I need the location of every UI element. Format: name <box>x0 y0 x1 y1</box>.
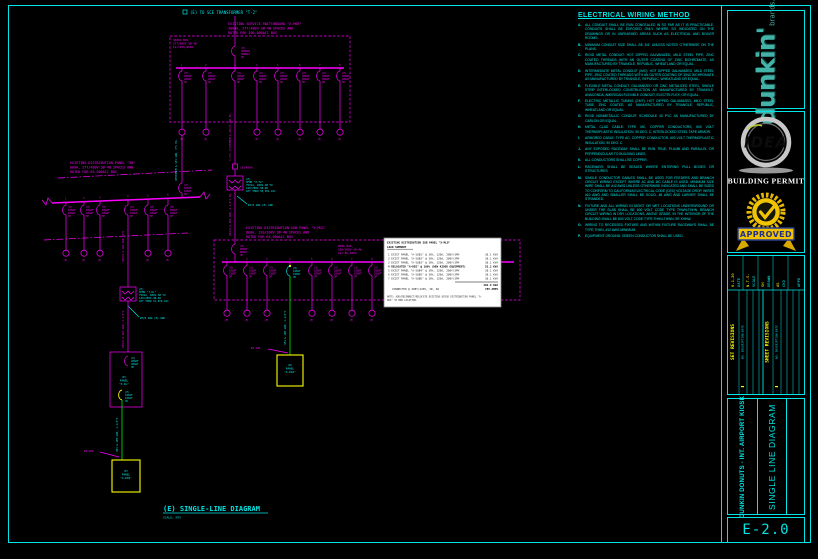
svg-text:NO. DESCRIPTION DATE: NO. DESCRIPTION DATE <box>741 325 745 359</box>
svg-text:3#350MCM & 1#1 GRD, 3"C EA.: 3#350MCM & 1#1 GRD, 3"C EA. <box>174 139 178 181</box>
svg-text:RATED FOR 100,000AIC BUS: RATED FOR 100,000AIC BUS <box>228 31 277 35</box>
svg-text:EXISTING DISTRIBUTION SUB PANE: EXISTING DISTRIBUTION SUB PANEL "X-MLO" <box>387 241 450 245</box>
svg-text:4: 4 <box>289 257 291 261</box>
svg-text:#4 GRD: #4 GRD <box>84 449 94 453</box>
svg-text:4: 4 <box>256 63 258 67</box>
note-item: ELECTRIC METALLIC TUBING (EMT): HOT DIPP… <box>585 99 714 112</box>
svg-text:4#4/0 & 1#4 GRD, 2-1/2"C EA.: 4#4/0 & 1#4 GRD, 2-1/2"C EA. <box>228 192 232 236</box>
svg-text:2: 2 <box>83 196 85 200</box>
svg-text:SH: SH <box>760 282 765 287</box>
note-item: ANY EXPOSED RACEWAY SHALL BE RUN TRUE, P… <box>585 147 714 156</box>
notes-title: ELECTRICAL WIRING METHOD <box>578 12 714 19</box>
svg-text:SHEET REVISIONS: SHEET REVISIONS <box>765 321 771 363</box>
svg-text:(E)400A: (E)400A <box>240 166 253 170</box>
svg-text:1: 1 <box>226 257 228 261</box>
drawing-title: (E) SINGLE-LINE DIAGRAM SCALE: NTS <box>163 505 268 520</box>
svg-text:4: 4 <box>127 194 129 198</box>
svg-text:3P: 3P <box>241 55 245 59</box>
svg-text:3P: 3P <box>293 275 297 279</box>
svg-text:1: 1 <box>181 63 183 67</box>
center-feeder-group: 3-3"C.(3)500MCM & 1#3/0 GRD EA. (E)400A … <box>227 113 276 244</box>
svg-text:(E) TO SCE TRANSFORMER "T-2": (E) TO SCE TRANSFORMER "T-2" <box>190 10 257 15</box>
svg-text:EXISTING DISTRIBUTION SUB PANE: EXISTING DISTRIBUTION SUB PANEL "X-MLO" <box>246 226 326 230</box>
svg-text:6: 6 <box>331 257 333 261</box>
main-switchboard: EXISTING SERVICE SWITCHBOARD "X-MSB" 300… <box>170 22 350 164</box>
sub-branch-breakers <box>224 262 382 322</box>
svg-text:3: 3 <box>234 63 236 67</box>
relocated-breaker: (R) 100AF 100AT 3P <box>287 262 301 279</box>
svg-text:3P: 3P <box>125 399 129 403</box>
note-item: FLEXIBLE METAL CONDUIT: GALVANIZED OR ZI… <box>585 84 714 97</box>
svg-text:RATED FOR 65,000AIC BUS: RATED FOR 65,000AIC BUS <box>246 235 293 239</box>
svg-text:CONNECTED @ 208Y/120V, 3Ø, 4W: CONNECTED @ 208Y/120V, 3Ø, 4W <box>392 286 439 291</box>
svg-text:SCALE: SCALE <box>751 275 756 287</box>
svg-text:6: 6 <box>167 193 169 197</box>
msb-feeder-breakers <box>179 68 350 164</box>
svg-text:8: 8 <box>339 63 341 67</box>
brand-logo-box: dunkin'brands... <box>727 10 805 109</box>
wiring-method-notes: ELECTRICAL WIRING METHOD A.ALL CONDUIT S… <box>578 12 714 241</box>
svg-text:EXISTING DISTRIBUTION PANEL "D: EXISTING DISTRIBUTION PANEL "DB" <box>70 161 135 165</box>
svg-text:LOAD SUMMARY: LOAD SUMMARY <box>387 245 407 249</box>
svg-text:1: 1 <box>65 197 67 201</box>
svg-text:CKD: CKD <box>781 279 786 287</box>
svg-text:5: 5 <box>277 63 279 67</box>
note-item: MINIMUM CONDUIT SIZE SHALL BE 3/4" UNLES… <box>585 43 714 52</box>
svg-text:#4 GRD: #4 GRD <box>251 346 261 350</box>
svg-text:3000A, 277/480V-3Ø-4W SPACES A: 3000A, 277/480V-3Ø-4W SPACES AND <box>228 26 293 31</box>
note-item: METAL CLAD CABLE: TYPE MC, COPPER CONDUC… <box>585 125 714 134</box>
svg-text:APPD: APPD <box>796 277 801 287</box>
certification-box: IDEA BUILDING PERMIT APPROVED <box>727 111 805 253</box>
project-name: DUNKIN DONUTS - INT. AIRPORT KIOSK <box>740 395 746 517</box>
svg-text:3#4/0 & 1#4 GRD, 2"C: 3#4/0 & 1#4 GRD, 2"C <box>121 230 125 262</box>
sheet-number-box: E-2.0 <box>727 517 805 543</box>
building-permit-label: BUILDING PERMIT <box>728 177 804 186</box>
note-item: WIRING TO RECESSED FIXTURE AND WITHIN FI… <box>585 223 714 232</box>
svg-text:DRAWN: DRAWN <box>766 275 771 287</box>
svg-text:"A-DD2": "A-DD2" <box>120 476 132 480</box>
transformer-t-dl: (E) XFMR "T-DL" 75kVA, 480V-3Ø TO 120/20… <box>120 287 169 303</box>
panel-a-dd2-relocated: (R) PANEL "A-DD2" <box>277 355 303 386</box>
svg-text:AS: AS <box>775 282 780 287</box>
project-title-box: DUNKIN DONUTS - INT. AIRPORT KIOSK SINGL… <box>727 398 805 515</box>
drawing-sheet: (E) 400AF 400AT 3P (E) 100AF 100AT 3P (E… <box>0 0 818 559</box>
panel-x-dl: (E) 400AF 400AT 3P (E) PANEL "X-DL" (E) … <box>110 352 142 407</box>
svg-text:3P: 3P <box>240 253 244 257</box>
db-branch-breakers <box>63 198 178 287</box>
note-item: SINGLE CONDUCTOR CABLES SHALL BE USED FO… <box>585 176 714 202</box>
svg-text:DATE: DATE <box>736 277 741 287</box>
svg-text:6-1-20: 6-1-20 <box>730 273 735 287</box>
svg-text:DD2" TO NEW LOCATION.: DD2" TO NEW LOCATION. <box>387 299 417 302</box>
svg-text:2: 2 <box>205 63 207 67</box>
idea-logo: IDEA <box>739 119 793 174</box>
load-summary-table: EXISTING DISTRIBUTION SUB PANEL "X-MLO" … <box>384 238 501 307</box>
approved-stamp: APPROVED <box>736 195 796 251</box>
svg-text:#3/0 AWG (E) GRD: #3/0 AWG (E) GRD <box>140 316 165 320</box>
relocated-panel-feeder: 3#4 & 1#8 GRD, 1-1/4"C #4 GRD (R) PANEL … <box>251 276 303 386</box>
svg-text:Isc=65,000A: Isc=65,000A <box>338 251 357 255</box>
svg-text:38.1 KVA: 38.1 KVA <box>485 277 498 281</box>
svg-text:(E) SINGLE-LINE DIAGRAM: (E) SINGLE-LINE DIAGRAM <box>163 505 260 513</box>
svg-text:6: 6 <box>299 63 301 67</box>
svg-text:8: 8 <box>371 257 373 261</box>
svg-text:800A, 120/208V-3Ø-4W SPACES AN: 800A, 120/208V-3Ø-4W SPACES AND <box>246 230 309 235</box>
svg-text:2: 2 <box>246 257 248 261</box>
svg-text:"X-DL": "X-DL" <box>119 382 129 386</box>
note-item: ALL CONDUCTORS SHALL BE COPPER. <box>585 158 648 162</box>
certification-graphics: IDEA BUILDING PERMIT APPROVED <box>728 112 804 252</box>
svg-text:3: 3 <box>266 257 268 261</box>
note-item: RIGID METAL CONDUIT: HOT DIPPED GALVANIZ… <box>585 53 714 66</box>
note-item: FIXTURE AND ALL WIRING IN MOIST OR WET L… <box>585 204 714 221</box>
transformer-x-t2: (E) XFMR "X-T2" 75kVA, 480V-3Ø TO 120/20… <box>227 176 276 193</box>
panel-a-dd2-existing: (E) PANEL "A-DD2" <box>112 460 140 492</box>
dunkin-logo: dunkin'brands... <box>752 0 781 124</box>
svg-text:LET THRU 30,504 AIC: LET THRU 30,504 AIC <box>246 189 276 193</box>
svg-text:RATED FOR 65,000AIC BUS: RATED FOR 65,000AIC BUS <box>70 170 117 174</box>
svg-text:4#4/0 & 1#4 GRD, 2-1/2"C: 4#4/0 & 1#4 GRD, 2-1/2"C <box>121 310 125 348</box>
svg-text:N.T.S.: N.T.S. <box>745 273 750 287</box>
note-item: INTERMEDIATE METAL CONDUIT (IMC): HOT DI… <box>585 69 714 82</box>
revisions-table: DATE 6-1-20 SCALE N.T.S. DRAWN SH CKD AS… <box>728 256 804 394</box>
revisions-box: DATE 6-1-20 SCALE N.T.S. DRAWN SH CKD AS… <box>727 255 805 395</box>
svg-text:#3/0 AWG (E) GRD: #3/0 AWG (E) GRD <box>248 203 273 207</box>
svg-text:5: 5 <box>147 193 149 197</box>
svg-text:NO. DESCRIPTION DATE: NO. DESCRIPTION DATE <box>775 325 779 359</box>
note-item: RACEWAYS SHALL BE SEALED WHERE ENTERING … <box>585 165 714 174</box>
svg-text:APPROVED: APPROVED <box>740 230 792 239</box>
left-feeder-group: 3#4/0 & 1#4 GRD, 2"C (E) XFMR "T-DL" 75k… <box>84 230 169 492</box>
sheet-number: E-2.0 <box>742 522 789 538</box>
svg-text:3-3"C.(3)500MCM & 1#3/0 GRD EA: 3-3"C.(3)500MCM & 1#3/0 GRD EA. <box>228 113 232 161</box>
svg-text:7: 7 <box>319 63 321 67</box>
svg-text:7: 7 <box>351 257 353 261</box>
svg-text:5: 5 <box>311 257 313 261</box>
svg-text:800A, 277/480V-3Ø-4W SPACES AN: 800A, 277/480V-3Ø-4W SPACES AND <box>70 165 133 170</box>
note-item: EQUIPMENT GROUND: GREEN CONDUCTOR SHALL … <box>585 234 684 238</box>
svg-text:SCALE: NTS: SCALE: NTS <box>163 516 181 520</box>
svg-text:Isc=100,000A: Isc=100,000A <box>173 45 194 49</box>
svg-text:3: 3 <box>99 195 101 199</box>
svg-text:EXISTING SERVICE SWITCHBOARD ": EXISTING SERVICE SWITCHBOARD "X-MSB" <box>228 22 302 26</box>
svg-text:3#4 & 1#8 GRD, 1-1/4"C: 3#4 & 1#8 GRD, 1-1/4"C <box>115 417 119 452</box>
note-item: ALL CONDUIT SHALL BE RUN CONCEALED IN SO… <box>585 23 714 40</box>
note-item: RIGID NONMETALLIC CONDUIT: SCHEDULE 40 P… <box>585 114 714 123</box>
titleblock-divider <box>721 5 722 542</box>
svg-text:3#4 & 1#8 GRD, 1-1/4"C: 3#4 & 1#8 GRD, 1-1/4"C <box>283 310 287 345</box>
svg-text:LET THRU 31,876 AIC: LET THRU 31,876 AIC <box>139 299 169 303</box>
svg-text:IDEA: IDEA <box>744 134 788 152</box>
svg-text:785 AMPS: 785 AMPS <box>485 287 498 291</box>
note-item: ARMORED CABLE: TYPE AC, COPPER CONDUCTOR… <box>585 136 714 145</box>
svg-text:SET REVISIONS: SET REVISIONS <box>730 324 736 360</box>
svg-text:7 EXIST PANEL "A-SUB6" @ 30%: 7 EXIST PANEL "A-SUB6" @ 30%, 120A, 208Y… <box>388 277 460 281</box>
svg-text:"A-DD2": "A-DD2" <box>284 370 296 374</box>
sheet-title: SINGLE LINE DIAGRAM <box>767 404 777 510</box>
distribution-panel-db: EXISTING DISTRIBUTION PANEL "DB" 800A, 2… <box>42 135 212 287</box>
svg-text:3P: 3P <box>131 365 135 369</box>
